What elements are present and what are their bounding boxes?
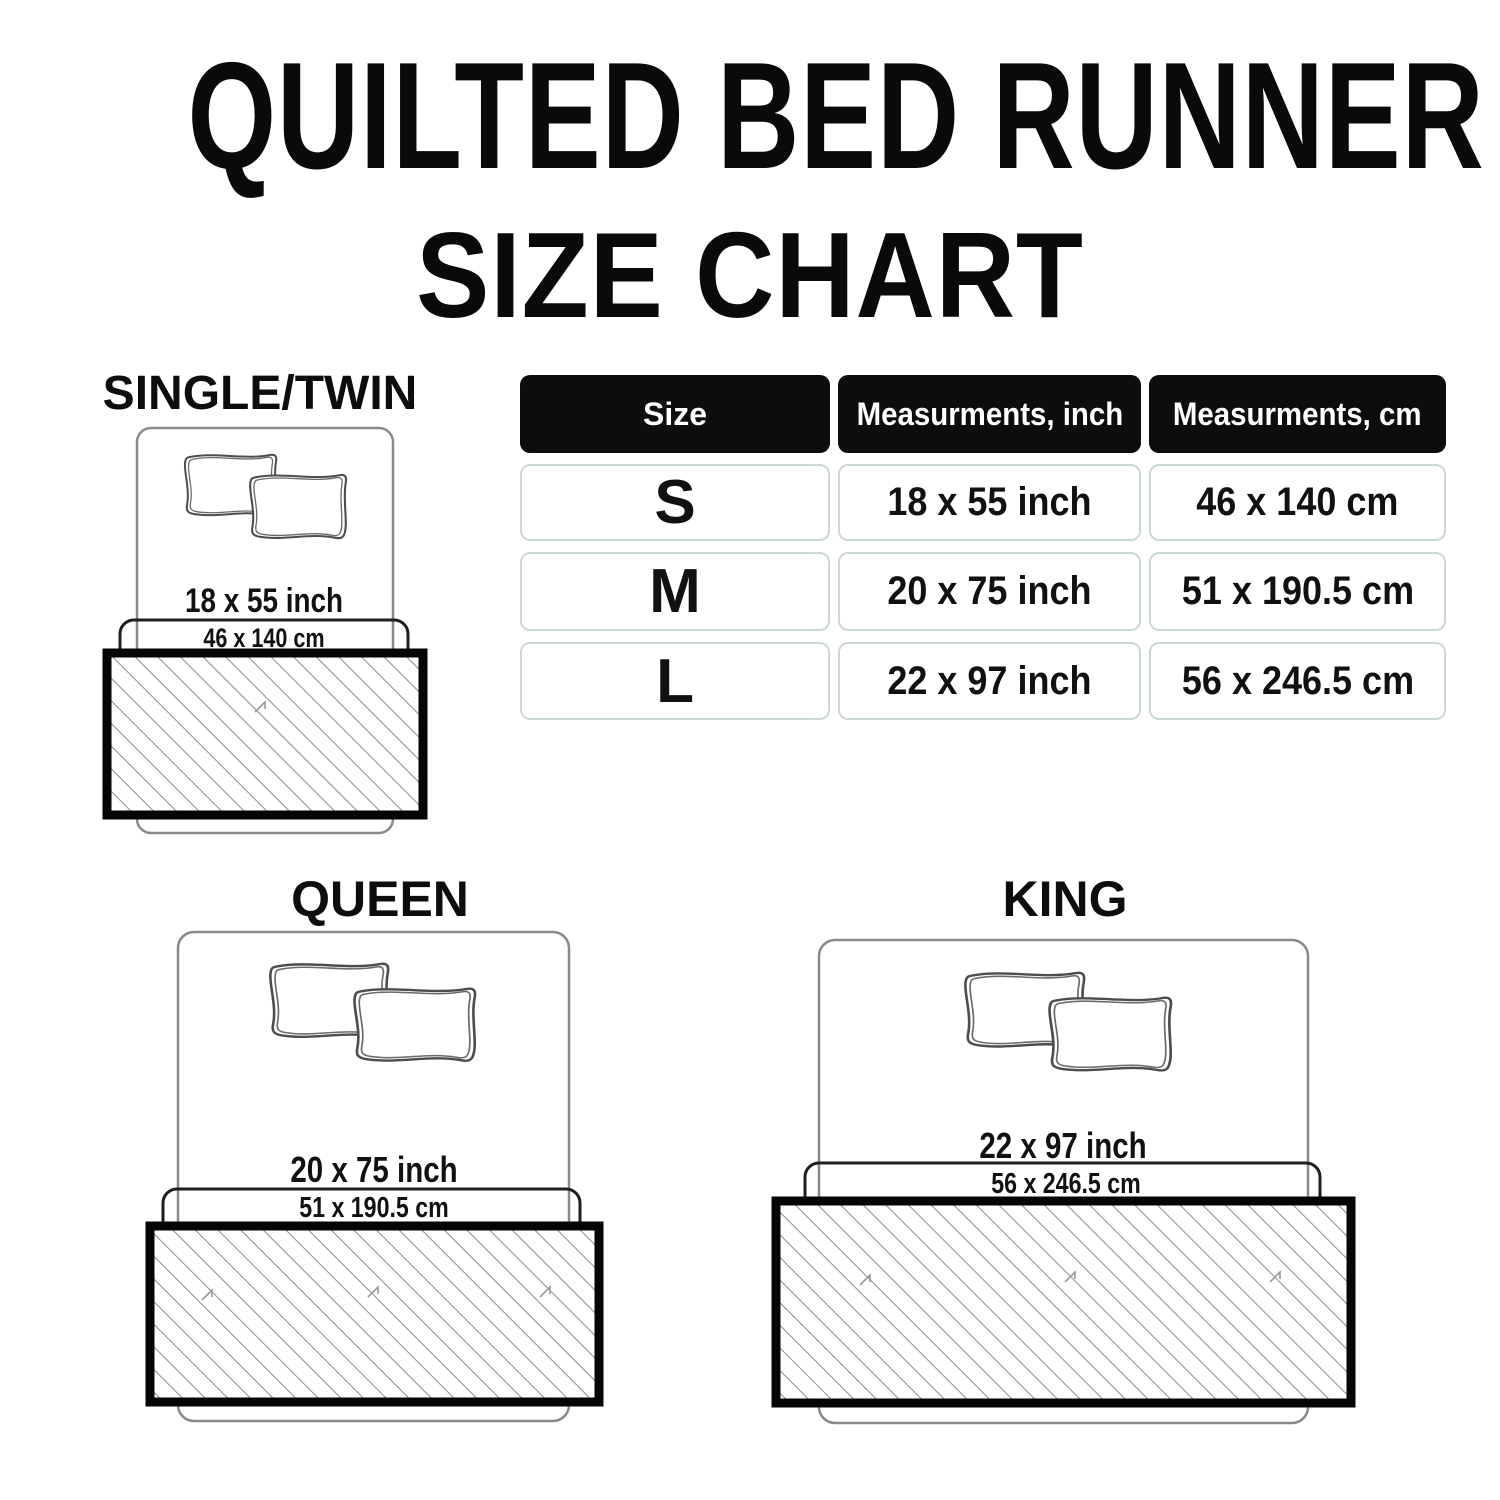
- size-table: Size Measurments, inch Measurments, cm S…: [520, 375, 1446, 720]
- table-header-inch-label: Measurments, inch: [856, 396, 1123, 433]
- bed-runner-hatched: [776, 1201, 1351, 1403]
- table-row: 46 x 140 cm: [1149, 464, 1446, 541]
- pillow-icon: [1049, 998, 1171, 1071]
- bed-runner-hatched: [150, 1226, 599, 1402]
- diagram-single-twin: 18 x 55 inch 46 x 140 cm: [80, 420, 440, 840]
- table-row: 56 x 246.5 cm: [1149, 642, 1446, 720]
- table-header-cm-label: Measurments, cm: [1173, 396, 1422, 433]
- cell-inch-m: 20 x 75 inch: [887, 569, 1091, 614]
- cell-size-s: S: [654, 467, 695, 538]
- table-header-size: Size: [520, 375, 830, 453]
- page-title: QUILTED BED RUNNER SIZE CHART: [0, 40, 1500, 336]
- cell-size-l: L: [656, 646, 694, 717]
- cell-size-m: M: [649, 556, 701, 627]
- dimension-inch-label: 22 x 97 inch: [979, 1125, 1146, 1165]
- pillow-icon: [250, 475, 346, 538]
- table-row: S: [520, 464, 830, 541]
- dimension-inch-label: 20 x 75 inch: [290, 1149, 457, 1189]
- table-row: 51 x 190.5 cm: [1149, 552, 1446, 631]
- pillow-icon: [354, 989, 475, 1061]
- size-chart-page: QUILTED BED RUNNER SIZE CHART SINGLE/TWI…: [0, 0, 1500, 1500]
- cell-inch-l: 22 x 97 inch: [887, 659, 1091, 704]
- diagram-queen: 20 x 75 inch 51 x 190.5 cm: [140, 925, 620, 1430]
- cell-cm-m: 51 x 190.5 cm: [1181, 569, 1413, 614]
- cell-inch-s: 18 x 55 inch: [887, 480, 1091, 525]
- table-row: L: [520, 642, 830, 720]
- table-header-size-label: Size: [643, 396, 707, 433]
- dimension-cm-label: 51 x 190.5 cm: [299, 1190, 449, 1223]
- cell-cm-l: 56 x 246.5 cm: [1181, 659, 1413, 704]
- dimension-cm-label: 56 x 246.5 cm: [991, 1166, 1141, 1199]
- page-title-line1: QUILTED BED RUNNER: [188, 40, 1313, 192]
- table-row: 22 x 97 inch: [838, 642, 1141, 720]
- table-header-inch: Measurments, inch: [838, 375, 1141, 453]
- diagram-king: 22 x 97 inch 56 x 246.5 cm: [765, 925, 1365, 1430]
- cell-cm-s: 46 x 140 cm: [1196, 480, 1398, 525]
- heading-single-twin: SINGLE/TWIN: [80, 366, 440, 421]
- table-row: 20 x 75 inch: [838, 552, 1141, 631]
- table-header-cm: Measurments, cm: [1149, 375, 1446, 453]
- table-row: M: [520, 552, 830, 631]
- heading-king: KING: [765, 870, 1365, 928]
- table-row: 18 x 55 inch: [838, 464, 1141, 541]
- bed-runner-hatched: [107, 653, 423, 815]
- page-title-line2: SIZE CHART: [75, 214, 1425, 336]
- heading-queen: QUEEN: [140, 870, 620, 928]
- dimension-inch-label: 18 x 55 inch: [185, 581, 343, 619]
